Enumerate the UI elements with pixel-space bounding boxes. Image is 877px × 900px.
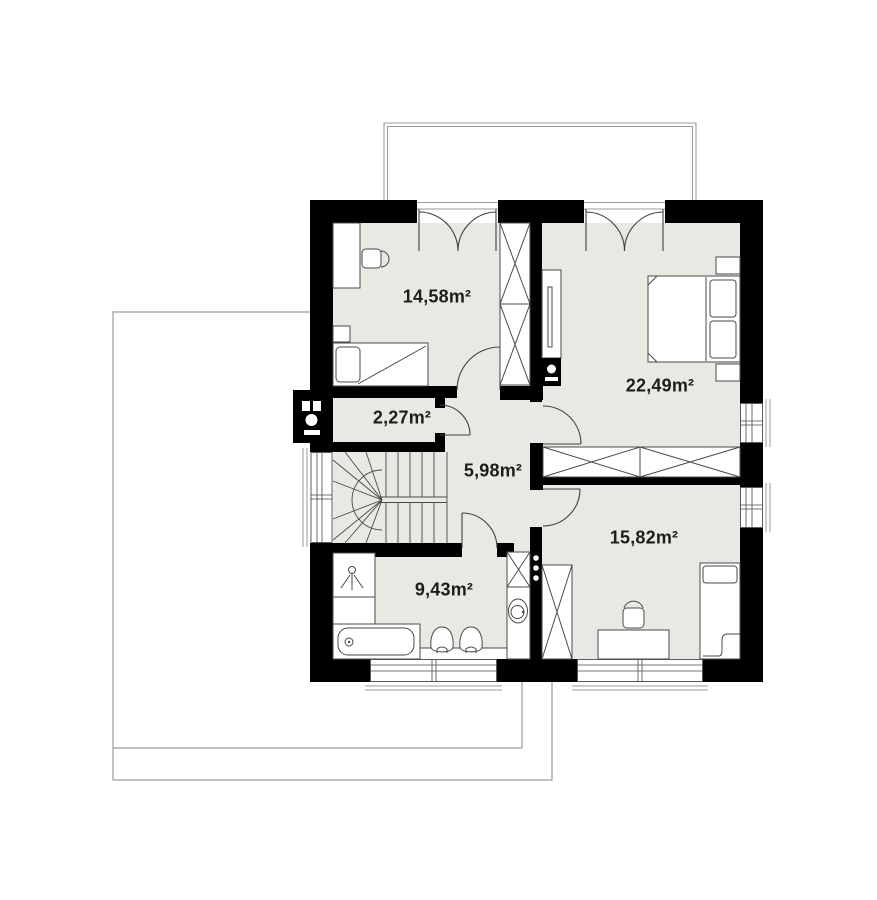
single-bed [333,343,428,386]
desk [598,630,669,659]
bathroom-cabinet [333,597,375,627]
floor-plan-svg [0,0,877,900]
window-right-2 [740,483,770,532]
window-left [303,448,333,547]
window-right-1 [740,399,770,447]
built-in-wardrobe [543,447,740,477]
shower [333,553,375,597]
wardrobe-closet [500,223,530,385]
room-area-label-bedroom-top-left: 14,58m² [403,287,471,308]
desk [333,223,360,288]
window-bottom-bathroom [365,659,502,690]
room-area-label-wc: 2,27m² [373,408,431,429]
wall-riser-dots [533,555,539,581]
nightstand [716,364,740,381]
chimney-block [293,390,333,443]
room-area-label-bedroom-top-right: 22,49m² [626,376,694,397]
double-bed [648,276,740,362]
sideboard-tv [542,270,561,358]
toilet [431,627,453,653]
single-bed [700,563,740,659]
wardrobe [542,565,572,659]
nightstand [333,326,350,342]
floor-plan: 14,58m² 22,49m² 2,27m² 5,98m² 15,82m² 9,… [0,0,877,900]
bidet [460,627,482,653]
room-area-label-hall: 5,98m² [464,461,522,482]
tall-cabinet [507,552,530,587]
balcony-outline [384,123,696,200]
window-bottom-bedroom [572,659,708,690]
nightstand [716,257,740,274]
flue-box [542,358,561,386]
room-area-label-bedroom-bottom-right: 15,82m² [610,528,678,549]
bathtub [333,624,420,659]
room-area-label-bathroom: 9,43m² [415,580,473,601]
